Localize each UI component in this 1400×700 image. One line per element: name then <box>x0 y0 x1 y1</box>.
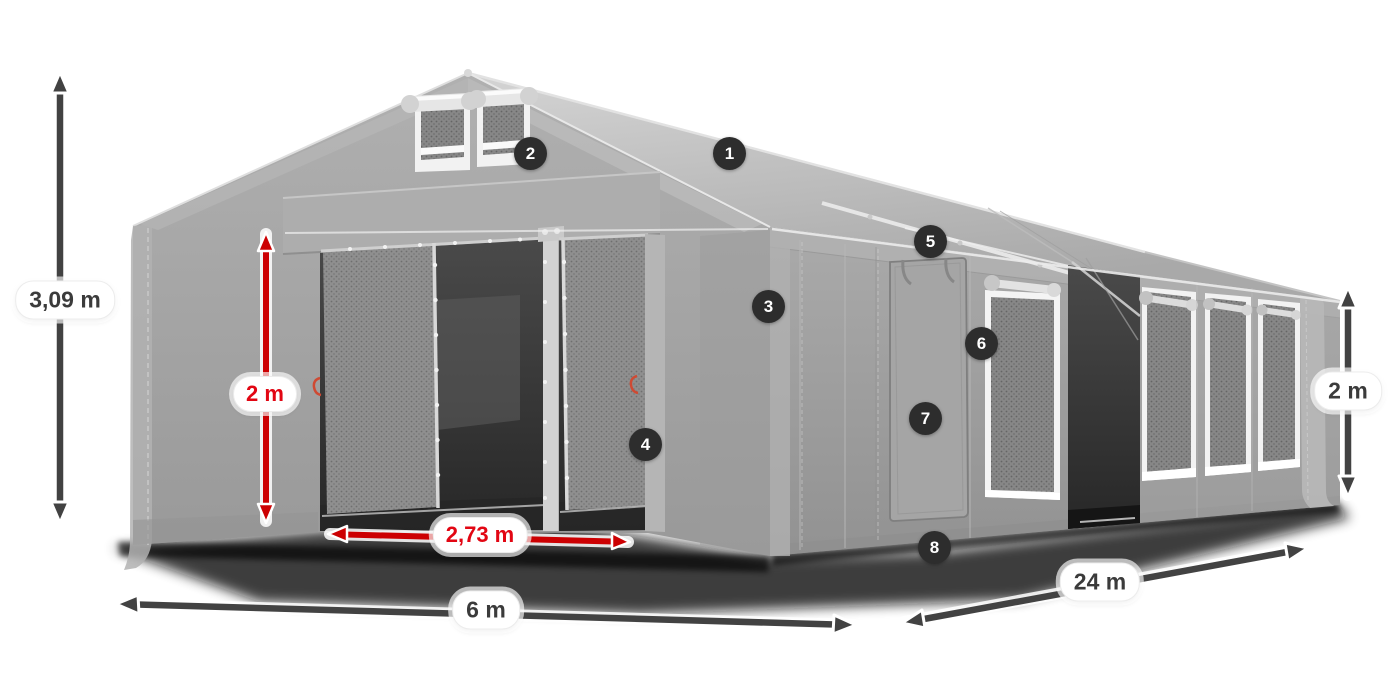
feature-marker-7[interactable]: 7 <box>909 402 942 435</box>
feature-marker-5[interactable]: 5 <box>914 225 947 258</box>
right-doorway <box>559 235 648 531</box>
feature-marker-1[interactable]: 1 <box>713 137 746 170</box>
module-gap <box>1068 258 1140 529</box>
feature-marker-2[interactable]: 2 <box>514 137 547 170</box>
dimension-label-side-wall-height: 2 m <box>1314 372 1382 411</box>
side-window <box>984 275 1061 500</box>
feature-marker-4[interactable]: 4 <box>629 428 662 461</box>
dimension-label-total-height: 3,09 m <box>15 281 115 320</box>
dimension-label-length: 24 m <box>1060 563 1140 602</box>
left-door-mesh-panel <box>323 243 437 514</box>
tent-illustration <box>0 0 1400 700</box>
right-door-mesh-panel <box>562 236 648 510</box>
dimension-label-entrance-width: 2,73 m <box>433 517 528 553</box>
feature-marker-6[interactable]: 6 <box>965 327 998 360</box>
feature-marker-3[interactable]: 3 <box>752 290 785 323</box>
apex-cap <box>464 69 472 77</box>
tent-dimension-diagram: 1 2 3 4 5 6 7 8 3,09 m 2 m 2,73 m 6 m 24… <box>0 0 1400 700</box>
dimension-label-width: 6 m <box>452 591 520 630</box>
dimension-label-entrance-height: 2 m <box>233 376 297 412</box>
rear-module-windows <box>1139 276 1340 523</box>
side-door <box>890 258 968 521</box>
left-doorway <box>314 238 545 532</box>
feature-marker-8[interactable]: 8 <box>918 531 951 564</box>
